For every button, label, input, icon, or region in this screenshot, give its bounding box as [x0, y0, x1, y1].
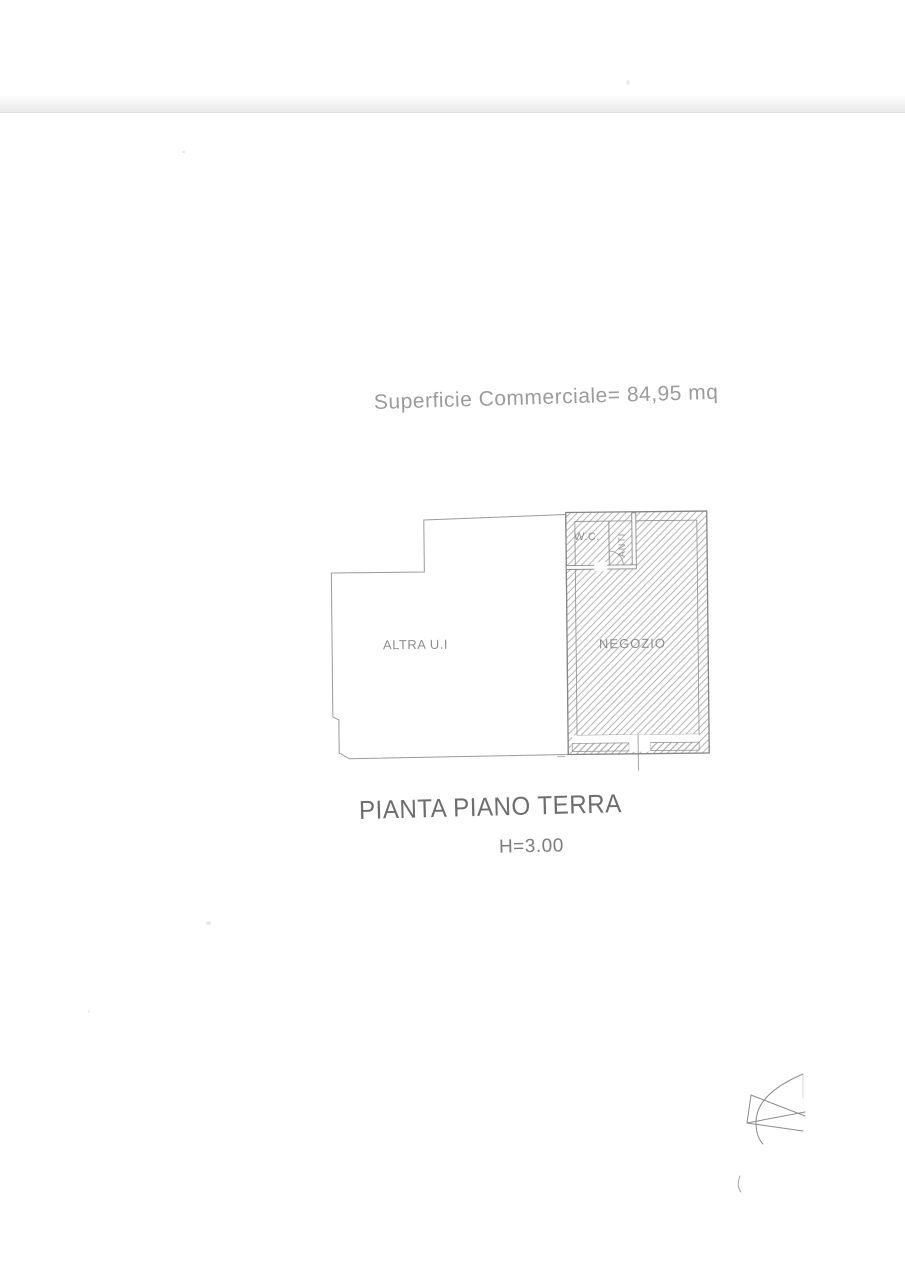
- scan-speck: [88, 1010, 90, 1013]
- room-label-altra-ui: ALTRA U.I: [383, 637, 448, 653]
- scan-speck: [626, 80, 630, 85]
- negozio-room-hatched: [566, 511, 710, 754]
- ceiling-height-label: H=3.00: [499, 835, 564, 858]
- small-pen-mark: [738, 1176, 741, 1192]
- room-label-anti: ANTI: [617, 528, 627, 562]
- room-label-wc: W.C.: [574, 531, 600, 543]
- scribble-mark: [738, 1074, 805, 1192]
- floor-plan-drawing: [0, 0, 905, 1280]
- altra-ui-room-outline: [331, 515, 569, 759]
- scan-speck: [206, 921, 211, 925]
- scan-speck: [182, 151, 185, 153]
- wc-door-gap: [594, 562, 607, 571]
- scanned-floorplan-page: Superficie Commerciale= 84,95 mq ALTRA U…: [0, 0, 905, 1280]
- room-label-negozio: NEGOZIO: [599, 636, 666, 652]
